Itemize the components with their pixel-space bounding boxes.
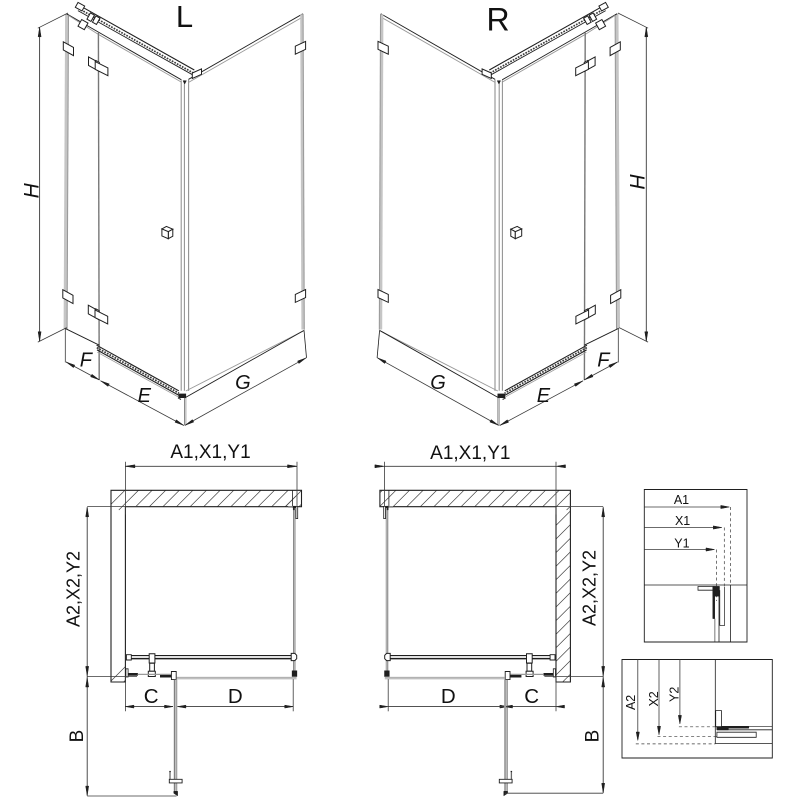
svg-text:E: E [138, 385, 152, 407]
svg-text:C: C [144, 685, 159, 708]
svg-text:X1: X1 [675, 514, 690, 528]
svg-text:A1: A1 [674, 493, 689, 507]
svg-text:G: G [235, 372, 251, 394]
svg-text:A2: A2 [624, 695, 638, 710]
svg-text:A1,X1,Y1: A1,X1,Y1 [430, 443, 510, 464]
svg-text:F: F [80, 349, 94, 371]
svg-text:A2,X2,Y2: A2,X2,Y2 [579, 550, 599, 626]
svg-text:B: B [67, 730, 88, 743]
svg-text:D: D [441, 685, 456, 708]
svg-text:F: F [597, 349, 611, 371]
svg-text:D: D [228, 685, 243, 708]
svg-text:Y1: Y1 [674, 536, 689, 550]
svg-text:C: C [524, 685, 539, 708]
svg-text:B: B [582, 730, 603, 743]
svg-text:L: L [176, 0, 193, 34]
svg-text:X2: X2 [647, 691, 661, 706]
svg-text:A1,X1,Y1: A1,X1,Y1 [170, 442, 250, 463]
svg-text:G: G [430, 372, 446, 394]
svg-text:E: E [537, 385, 551, 407]
svg-text:H: H [625, 174, 648, 190]
svg-text:H: H [21, 182, 44, 198]
svg-text:A2,X2,Y2: A2,X2,Y2 [63, 551, 83, 627]
svg-text:R: R [486, 2, 509, 38]
svg-text:Y2: Y2 [668, 687, 682, 702]
